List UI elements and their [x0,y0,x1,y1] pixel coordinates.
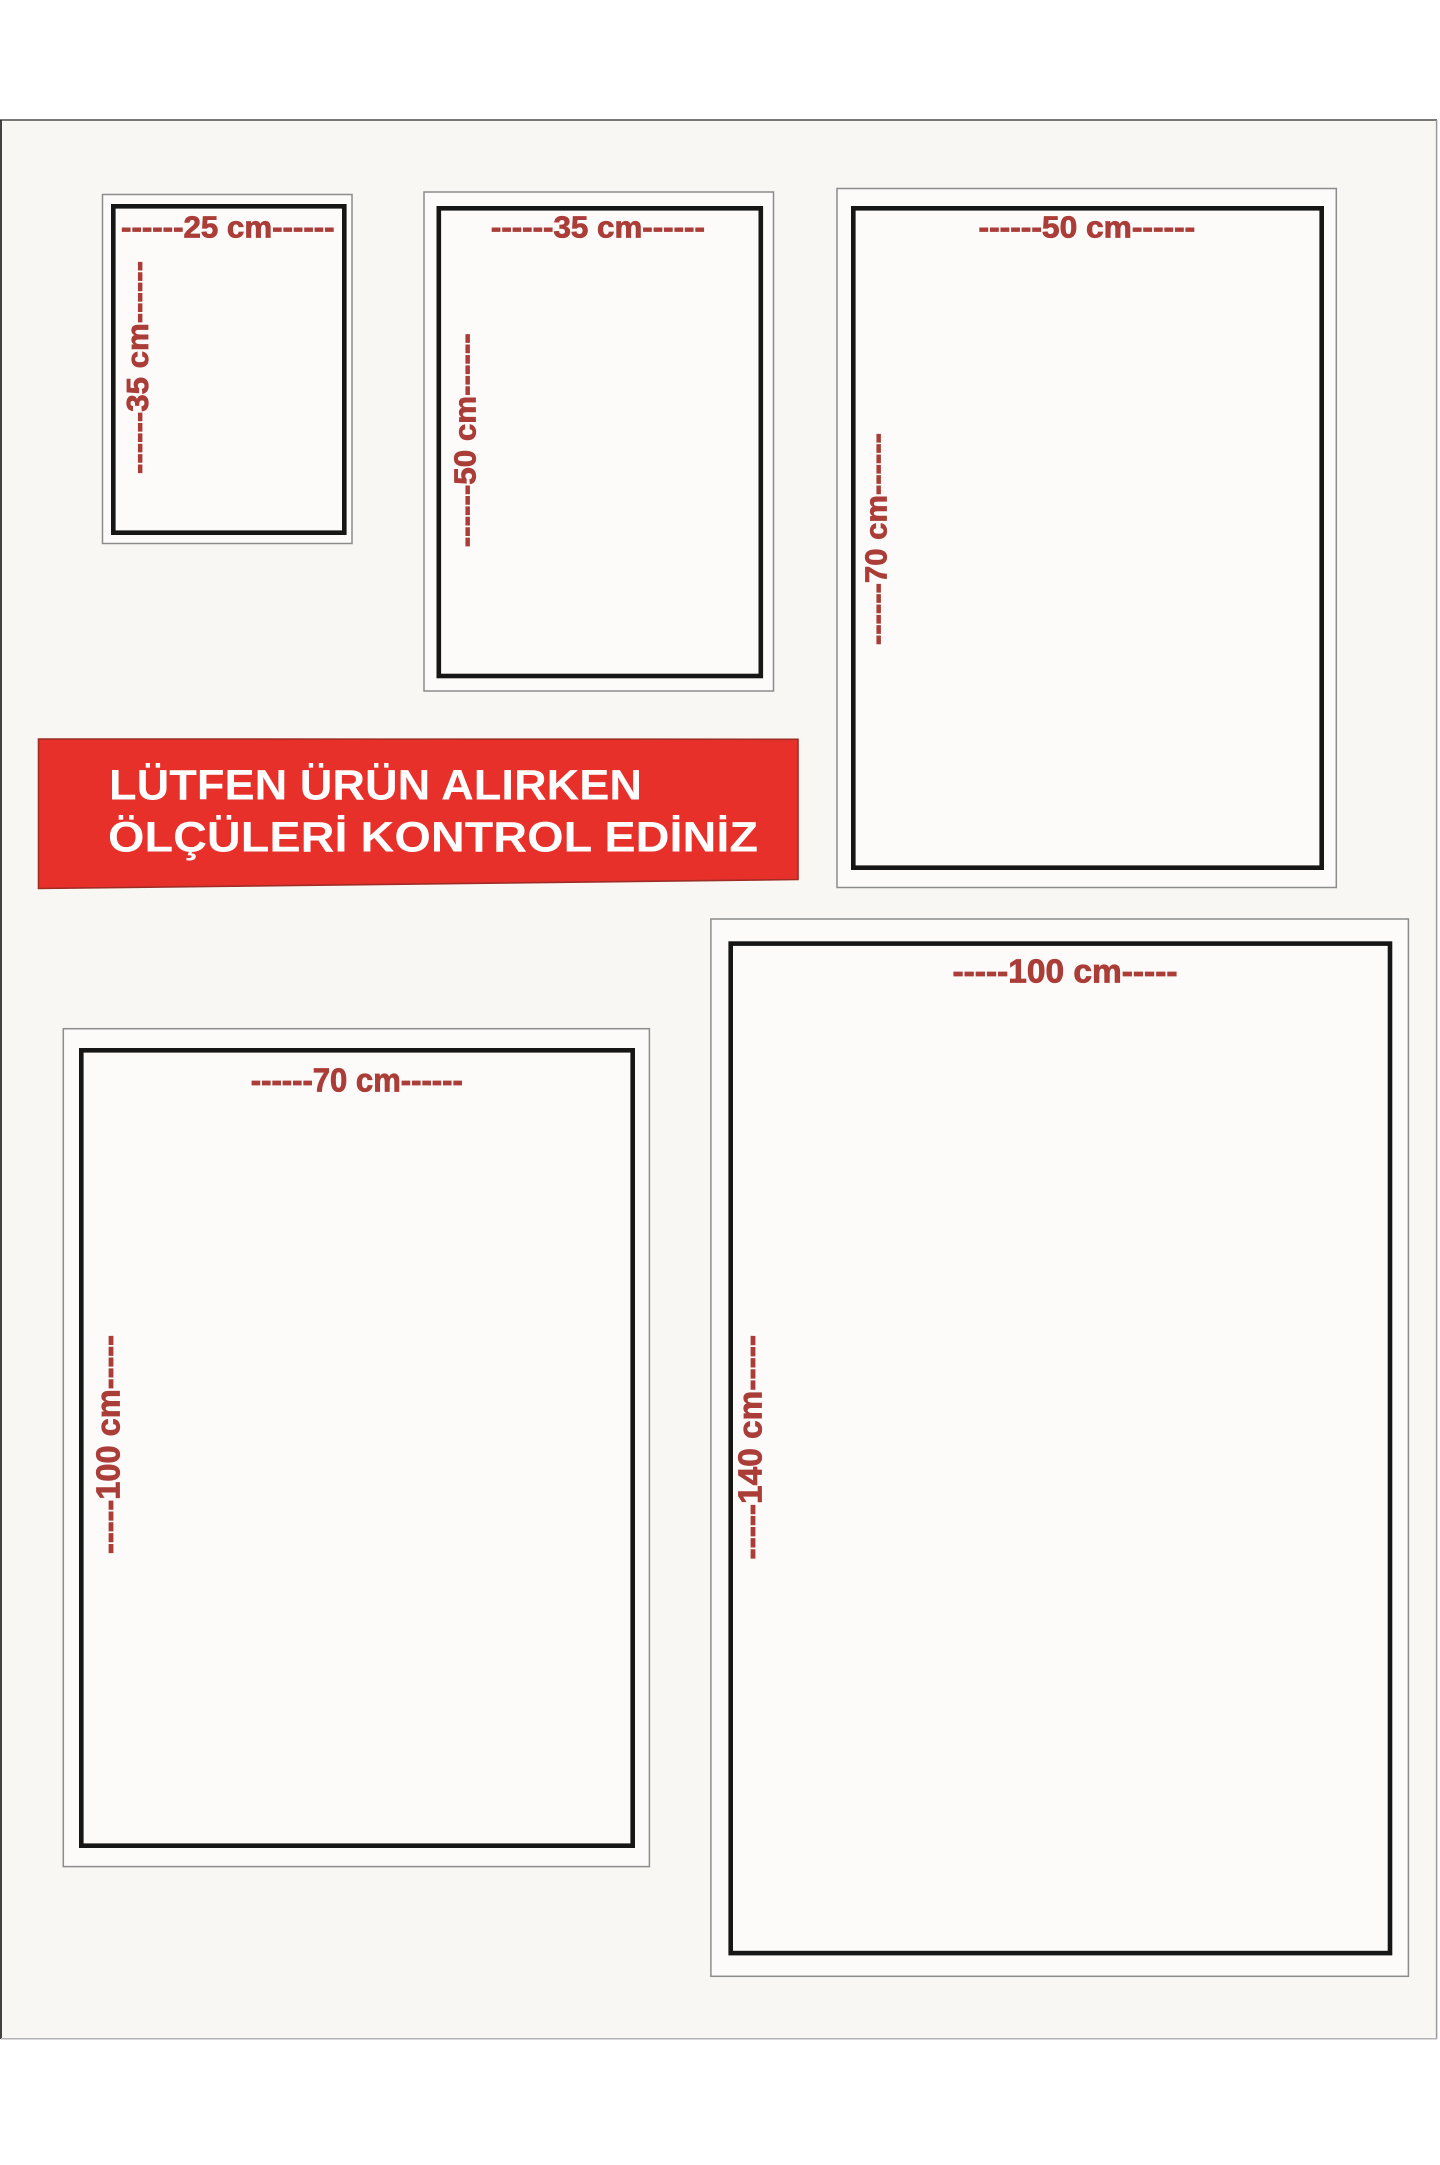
svg-text:-----100 cm-----: -----100 cm----- [953,953,1178,990]
svg-text:------70 cm------: ------70 cm------ [859,433,894,645]
svg-text:------70 cm------: ------70 cm------ [251,1062,463,1099]
svg-text:------35 cm------: ------35 cm------ [120,261,155,474]
svg-text:------35 cm------: ------35 cm------ [491,210,705,245]
svg-text:LÜTFEN ÜRÜN ALIRKEN: LÜTFEN ÜRÜN ALIRKEN [109,762,642,810]
svg-text:ÖLÇÜLERİ KONTROL EDİNİZ: ÖLÇÜLERİ KONTROL EDİNİZ [108,814,758,862]
svg-text:-----140 cm-----: -----140 cm----- [731,1335,768,1560]
svg-text:------50 cm------: ------50 cm------ [448,333,483,547]
svg-text:------25 cm------: ------25 cm------ [121,210,334,245]
svg-text:------50 cm------: ------50 cm------ [979,210,1196,245]
svg-text:-----100 cm-----: -----100 cm----- [90,1335,127,1554]
